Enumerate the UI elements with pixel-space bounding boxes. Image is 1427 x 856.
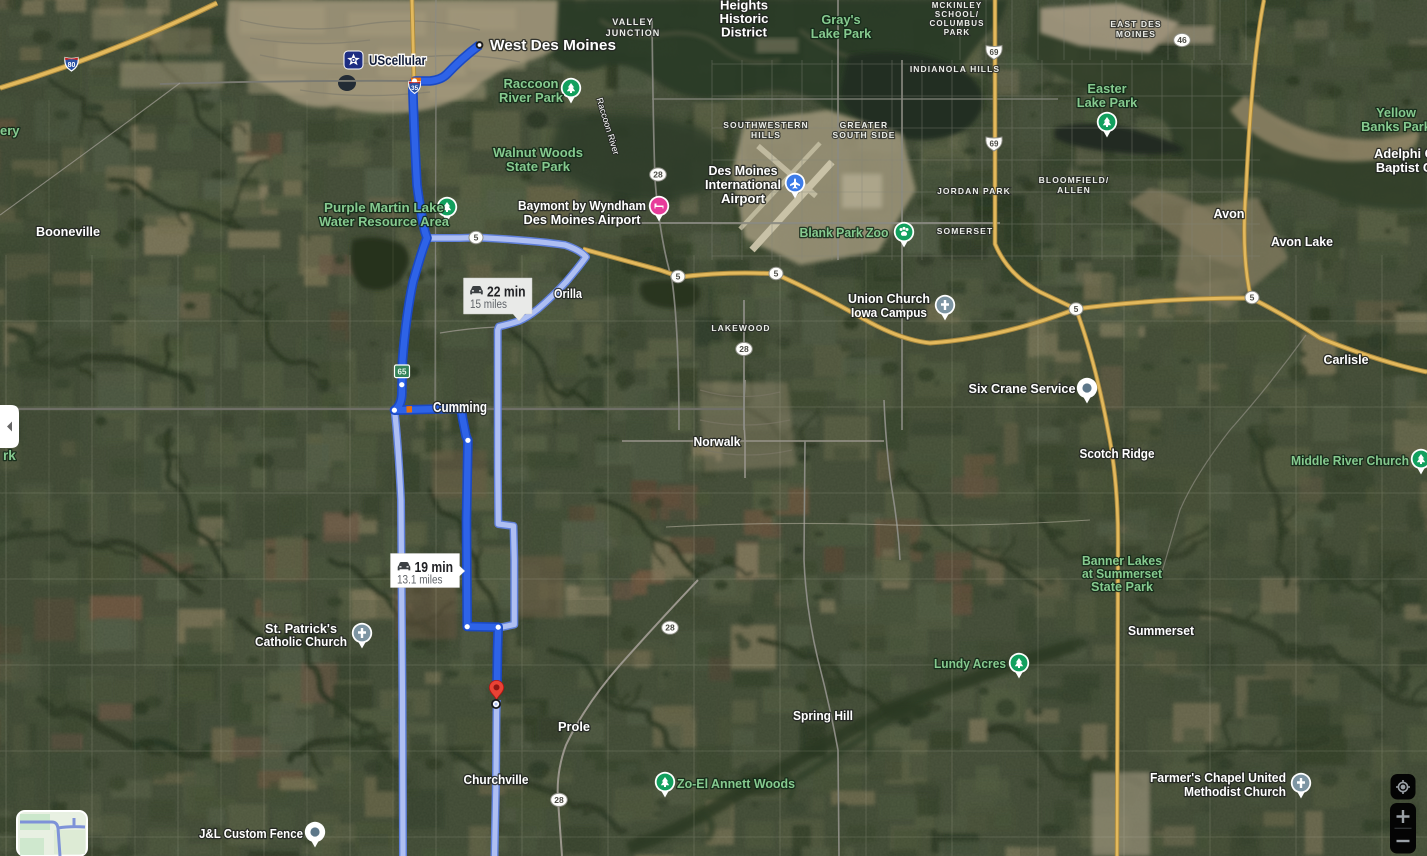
svg-text:MCKINLEY: MCKINLEY	[932, 1, 983, 10]
svg-text:J&L Custom Fence: J&L Custom Fence	[199, 826, 303, 841]
svg-text:rk: rk	[3, 448, 16, 463]
svg-text:Gray's: Gray's	[821, 12, 860, 27]
svg-text:LAKEWOOD: LAKEWOOD	[711, 323, 770, 333]
svg-text:BLOOMFIELD/: BLOOMFIELD/	[1039, 175, 1110, 185]
svg-text:5: 5	[1074, 304, 1079, 314]
svg-text:SOUTH SIDE: SOUTH SIDE	[833, 130, 896, 140]
svg-text:5: 5	[1250, 293, 1255, 303]
svg-text:Cumming: Cumming	[433, 400, 487, 416]
svg-text:PARK: PARK	[944, 28, 970, 37]
svg-text:State Park: State Park	[1091, 579, 1154, 594]
svg-text:Catholic Church: Catholic Church	[255, 634, 347, 649]
svg-text:5: 5	[676, 272, 681, 282]
svg-text:Baymont by Wyndham: Baymont by Wyndham	[518, 198, 646, 213]
svg-text:Airport: Airport	[721, 191, 766, 206]
svg-text:Avon Lake: Avon Lake	[1271, 234, 1333, 249]
svg-text:28: 28	[739, 344, 749, 354]
svg-text:13.1 miles: 13.1 miles	[397, 575, 443, 587]
svg-text:District: District	[721, 25, 768, 40]
svg-text:INDIANOLA HILLS: INDIANOLA HILLS	[910, 64, 1000, 74]
svg-text:Water Resource Area: Water Resource Area	[319, 214, 450, 229]
svg-text:HILLS: HILLS	[751, 130, 781, 140]
svg-text:Zo-El Annett Woods: Zo-El Annett Woods	[677, 776, 795, 791]
svg-text:GREATER: GREATER	[840, 120, 889, 130]
svg-text:Carlisle: Carlisle	[1324, 352, 1369, 367]
svg-text:Lake Park: Lake Park	[1077, 95, 1138, 110]
svg-text:Churchville: Churchville	[464, 772, 529, 787]
svg-text:Farmer's Chapel United: Farmer's Chapel United	[1150, 770, 1286, 785]
svg-text:69: 69	[990, 48, 999, 57]
svg-text:Middle River Church: Middle River Church	[1291, 453, 1409, 468]
svg-text:Six Crane Service: Six Crane Service	[969, 381, 1076, 396]
svg-text:Adelphi C: Adelphi C	[1374, 146, 1427, 161]
svg-text:Prole: Prole	[558, 719, 590, 734]
svg-text:Union Church: Union Church	[848, 291, 930, 306]
svg-text:State Park: State Park	[506, 159, 571, 174]
svg-text:Scotch Ridge: Scotch Ridge	[1080, 446, 1155, 461]
svg-text:JORDAN PARK: JORDAN PARK	[937, 186, 1011, 196]
svg-text:Blank Park Zoo: Blank Park Zoo	[800, 225, 889, 240]
svg-text:Des Moines Airport: Des Moines Airport	[524, 212, 642, 227]
svg-text:65: 65	[398, 367, 407, 376]
svg-text:Methodist Church: Methodist Church	[1184, 784, 1286, 799]
svg-text:5: 5	[474, 233, 479, 243]
svg-text:80: 80	[68, 62, 76, 69]
svg-text:SCHOOL/: SCHOOL/	[935, 10, 979, 19]
svg-text:Orilla: Orilla	[554, 286, 583, 301]
svg-text:Spring Hill: Spring Hill	[793, 708, 853, 723]
svg-text:VALLEY: VALLEY	[612, 17, 653, 27]
svg-text:Booneville: Booneville	[36, 224, 100, 239]
svg-text:EAST DES: EAST DES	[1110, 19, 1161, 29]
svg-text:5: 5	[774, 269, 779, 279]
svg-text:Norwalk: Norwalk	[694, 434, 742, 449]
svg-text:West Des Moines: West Des Moines	[490, 37, 616, 54]
svg-text:Raccoon: Raccoon	[504, 76, 559, 91]
svg-text:28: 28	[653, 170, 663, 180]
svg-text:Lundy Acres: Lundy Acres	[934, 656, 1006, 671]
svg-text:International: International	[705, 177, 781, 192]
svg-text:Avon: Avon	[1214, 206, 1245, 221]
svg-text:28: 28	[665, 623, 675, 633]
svg-text:Baptist C: Baptist C	[1376, 160, 1427, 175]
svg-text:Banks Park: Banks Park	[1361, 119, 1427, 134]
svg-text:69: 69	[990, 140, 999, 149]
svg-text:15 miles: 15 miles	[470, 299, 507, 311]
svg-text:MOINES: MOINES	[1116, 29, 1156, 39]
svg-text:SOUTHWESTERN: SOUTHWESTERN	[723, 120, 808, 130]
svg-text:Walnut Woods: Walnut Woods	[493, 145, 583, 160]
svg-text:JUNCTION: JUNCTION	[606, 28, 661, 38]
svg-text:ALLEN: ALLEN	[1057, 185, 1091, 195]
svg-text:COLUMBUS: COLUMBUS	[929, 19, 984, 28]
svg-text:28: 28	[554, 795, 564, 805]
svg-text:46: 46	[1177, 35, 1187, 45]
svg-text:River Park: River Park	[499, 90, 564, 105]
svg-text:Purple Martin Lake: Purple Martin Lake	[324, 200, 444, 215]
svg-text:Des Moines: Des Moines	[709, 163, 778, 178]
svg-text:ery: ery	[0, 123, 20, 138]
svg-text:UScellular: UScellular	[369, 52, 426, 68]
svg-text:Lake Park: Lake Park	[811, 26, 872, 41]
svg-text:Summerset: Summerset	[1128, 623, 1195, 638]
svg-text:Easter: Easter	[1087, 81, 1126, 96]
svg-text:Iowa Campus: Iowa Campus	[851, 305, 927, 320]
svg-text:35: 35	[411, 85, 418, 92]
svg-text:Yellow: Yellow	[1376, 105, 1416, 120]
svg-text:SOMERSET: SOMERSET	[937, 226, 994, 236]
